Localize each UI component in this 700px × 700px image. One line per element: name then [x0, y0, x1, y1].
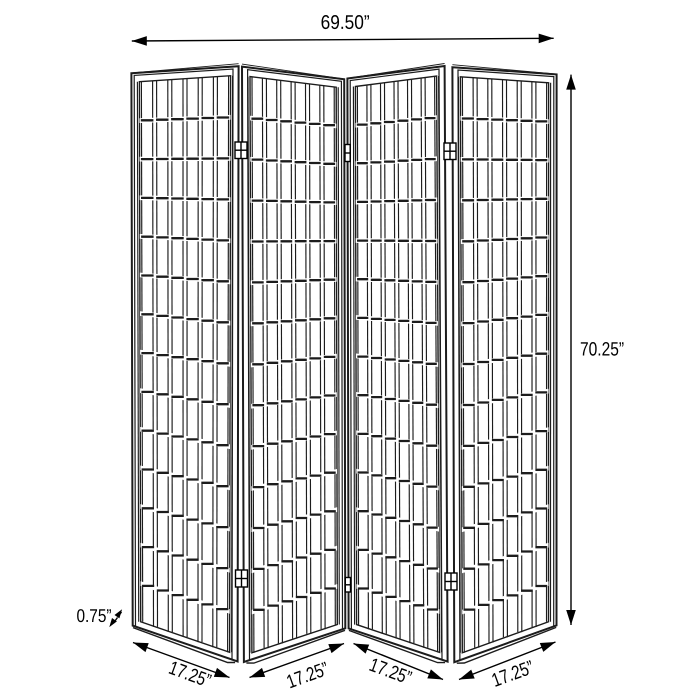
- svg-text:0.75”: 0.75”: [76, 605, 111, 626]
- svg-text:69.50”: 69.50”: [321, 12, 370, 34]
- svg-text:70.25”: 70.25”: [580, 340, 624, 361]
